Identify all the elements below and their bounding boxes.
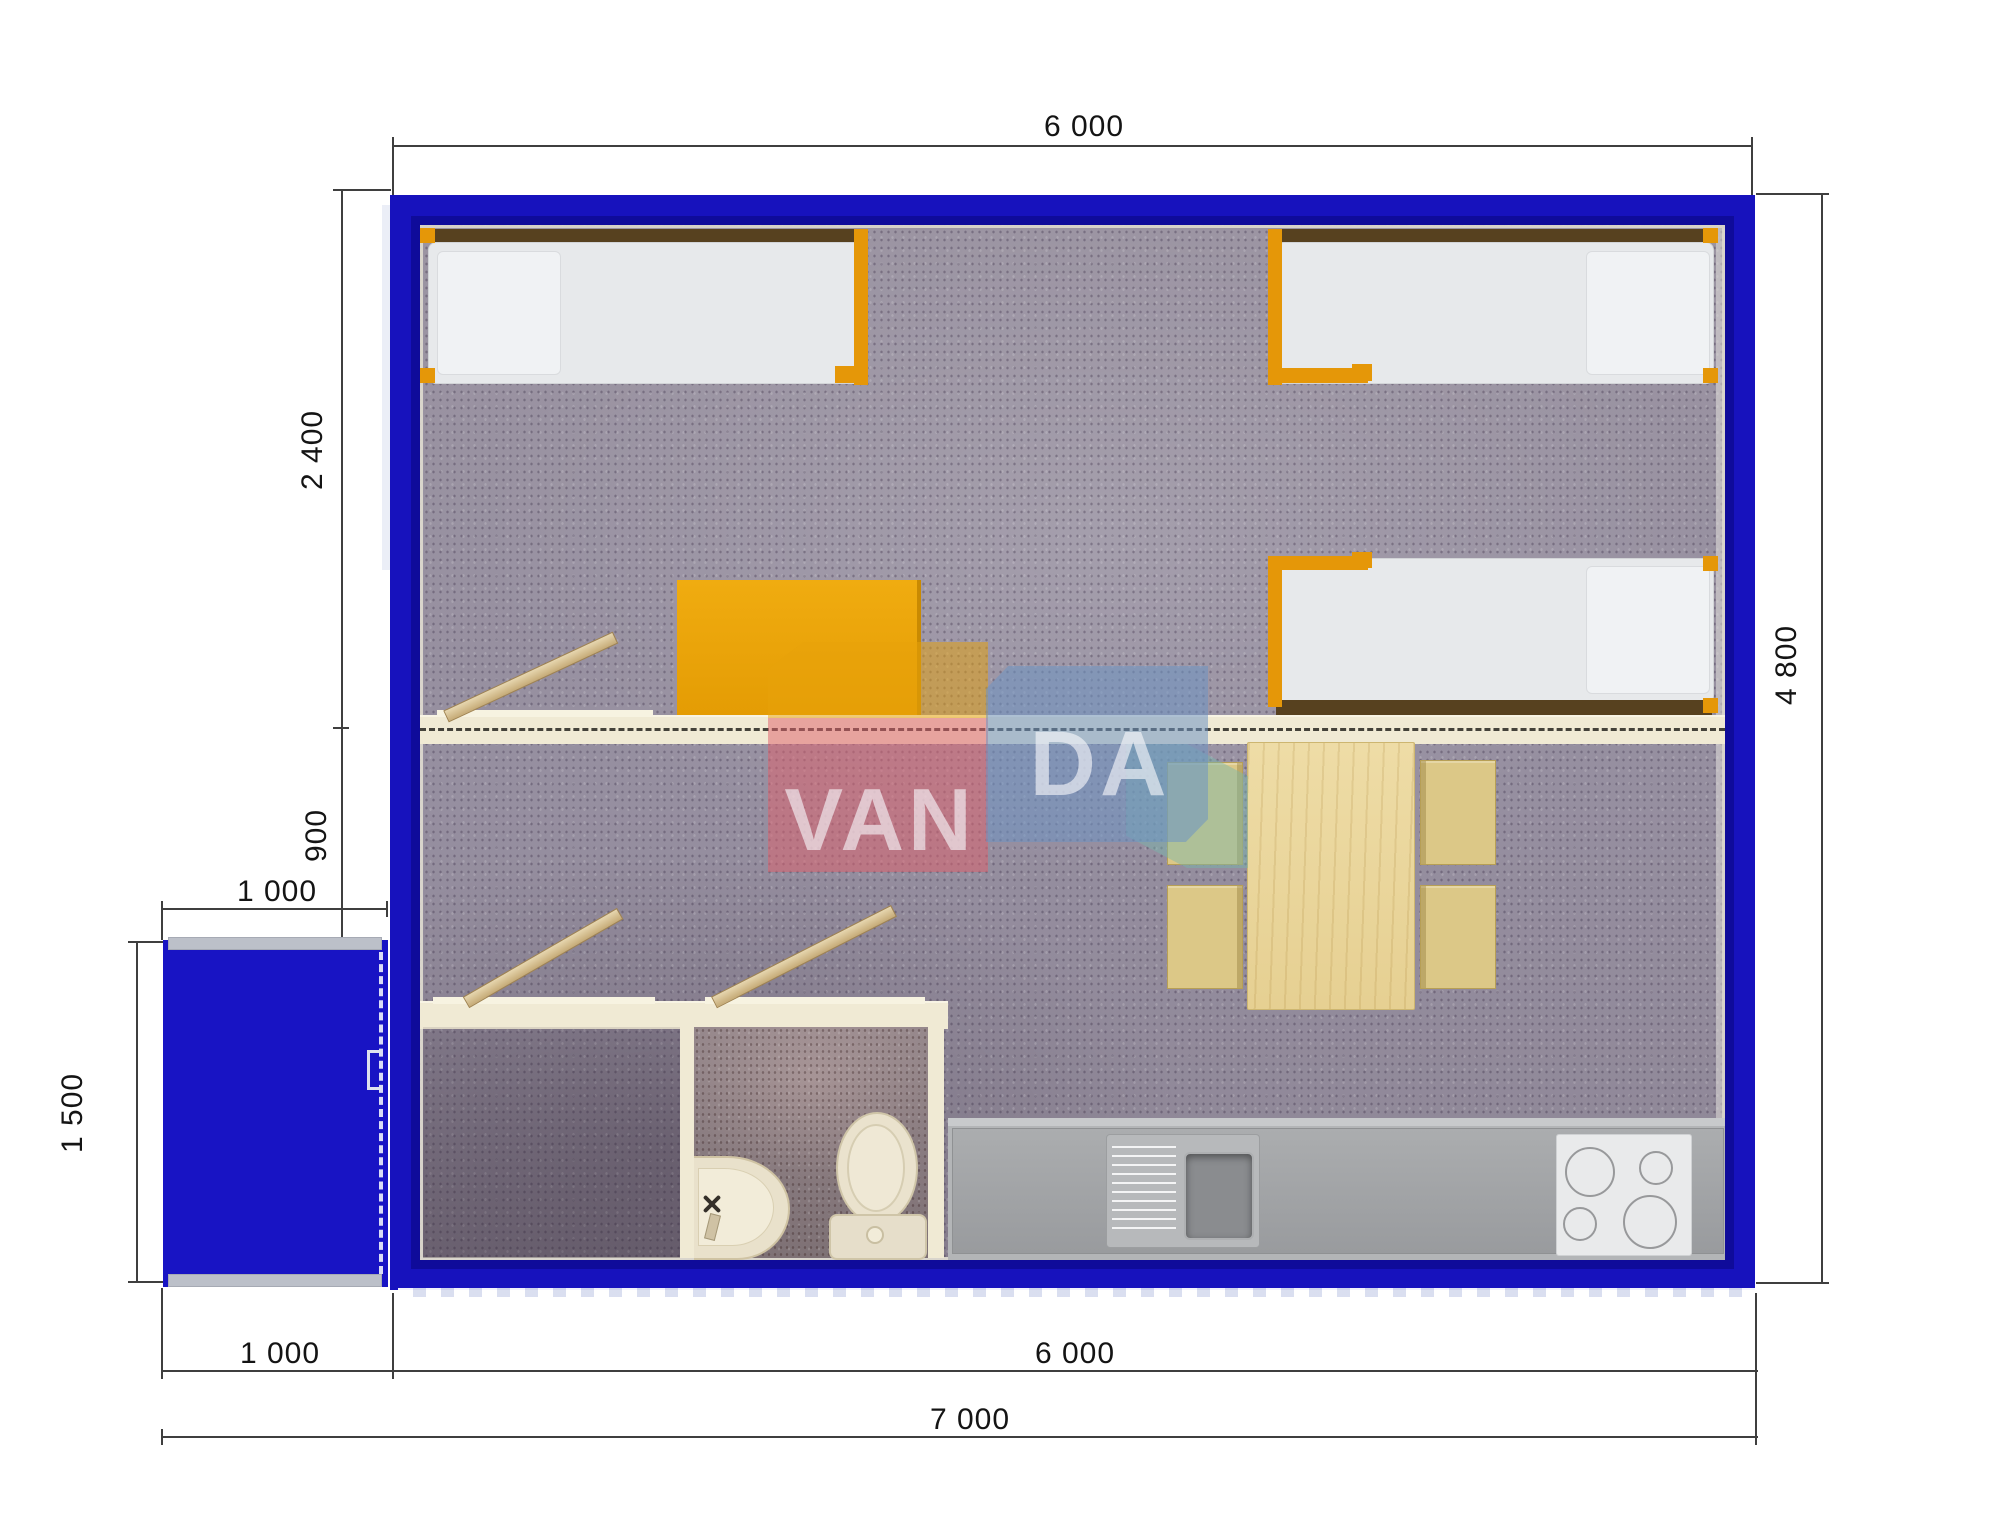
toilet-lid-inner: [847, 1124, 905, 1212]
dim-label-building-depth: 4 800: [1770, 572, 1810, 757]
bed-footboard: [1276, 700, 1712, 715]
dim-label-total-width: 7 000: [900, 1404, 1040, 1436]
porch-sill-top: [168, 937, 382, 950]
extension-line: [161, 915, 163, 940]
dim-label-bedroom-depth: 2 400: [296, 362, 332, 538]
tick: [333, 727, 349, 729]
dining-chair: [1420, 885, 1496, 989]
extension-line: [136, 941, 164, 943]
bed-pillow: [437, 251, 561, 375]
kitchen-sink-basin: [1184, 1152, 1254, 1240]
dim-label-middle-gap: 900: [300, 780, 334, 890]
faucet-cross-icon: [700, 1192, 724, 1216]
bed-frame-tab: [835, 366, 855, 383]
tick: [161, 1429, 163, 1445]
extension-line: [161, 1288, 163, 1371]
stove-burner: [1563, 1207, 1597, 1241]
watermark-yellow-box: [768, 642, 988, 718]
watermark-letters-da: DA: [1000, 712, 1200, 816]
bathroom-front-wall: [420, 1001, 948, 1029]
extension-line: [1756, 193, 1822, 195]
dim-label-porch-width-bottom: 1 000: [210, 1338, 350, 1370]
extension-line: [392, 1293, 394, 1371]
dining-chair: [1167, 885, 1243, 989]
left-wall-window-hint: [382, 205, 390, 570]
hall-floor-shadow: [423, 1027, 680, 1258]
bed-headboard: [1275, 229, 1713, 242]
stove-burner: [1623, 1195, 1677, 1249]
watermark-letters-van: VAN: [775, 772, 985, 868]
dim-line-bottom-2: [162, 1436, 1758, 1438]
dim-line-left-vertical: [341, 190, 343, 943]
bed-frame-post: [420, 368, 435, 383]
bed-frame-post: [1703, 368, 1718, 383]
extension-line: [392, 151, 394, 195]
dim-label-porch-width-top: 1 000: [207, 876, 347, 908]
tick: [386, 901, 388, 917]
bed-frame-tab: [1352, 552, 1372, 568]
porch-deck: [163, 940, 388, 1287]
stove: [1556, 1134, 1692, 1256]
toilet-flush-button: [866, 1226, 884, 1244]
dim-label-building-width-bottom: 6 000: [1005, 1338, 1145, 1370]
dining-table: [1247, 742, 1415, 1010]
tick: [1755, 1429, 1757, 1445]
bottom-wall-dashes: [398, 1288, 1755, 1297]
dim-line-porch-depth: [136, 942, 138, 1283]
dining-chair: [1420, 760, 1496, 865]
stove-burner: [1639, 1151, 1673, 1185]
extension-line: [1755, 1293, 1757, 1439]
bed-frame-tab: [1352, 364, 1372, 381]
bed-frame-post: [1703, 228, 1718, 243]
bed-frame-post: [1703, 698, 1718, 713]
bed-pillow: [1586, 566, 1710, 694]
dim-line-building-depth: [1821, 194, 1823, 1284]
bed-frame-rail: [1268, 229, 1282, 385]
kitchen-sink-drainboard: [1112, 1146, 1176, 1236]
extension-line: [136, 1281, 164, 1283]
bed-pillow: [1586, 251, 1710, 375]
stove-burner: [1565, 1147, 1615, 1197]
dim-label-top-width: 6 000: [1014, 111, 1154, 143]
extension-line: [1756, 1282, 1822, 1284]
entry-door-dashed-line: [379, 952, 383, 1274]
extension-line: [341, 189, 391, 191]
dim-label-porch-depth: 1 500: [56, 1028, 92, 1198]
dim-line-bottom-1: [162, 1370, 1758, 1372]
dim-line-porch-top: [162, 908, 388, 910]
bed-frame-post: [1703, 556, 1718, 571]
dim-line-top-width: [393, 145, 1753, 147]
bed-headboard: [426, 229, 864, 242]
entry-door-handle-icon: [367, 1050, 381, 1090]
bed-frame-post: [420, 228, 435, 243]
porch-sill-bottom: [168, 1274, 382, 1287]
bed-frame-rail: [854, 229, 868, 385]
bed-frame-rail: [1268, 557, 1282, 707]
wall-bathroom-right: [928, 1027, 944, 1258]
door-threshold-bathroom: [705, 997, 925, 1004]
wall-hall-bathroom: [680, 1027, 694, 1258]
extension-line: [1751, 151, 1753, 195]
floor-plan-page: 6 000 2 400 900 1 000 1 500 4 800: [0, 0, 2000, 1537]
